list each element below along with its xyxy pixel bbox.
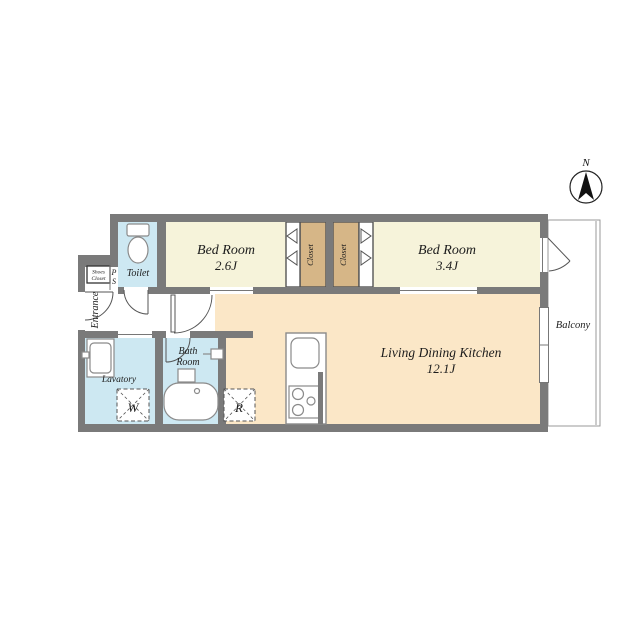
bedroom-large-size-label: 3.4J — [435, 258, 459, 273]
bedroom-small-size-label: 2.6J — [215, 258, 238, 273]
washer-space-label: W — [128, 400, 140, 415]
stove-burner-right — [307, 397, 315, 405]
compass-north-label: N — [581, 157, 590, 169]
pipe-space-label-s: S — [112, 277, 116, 286]
ldk-name-label: Living Dining Kitchen — [380, 345, 502, 360]
wall-toilet-bottom-right — [148, 287, 166, 294]
wall-right-seg3 — [540, 382, 548, 428]
bathroom-label-line2: Room — [175, 357, 199, 368]
refrigerator-space-label: R — [234, 400, 243, 415]
shoes-closet-label-line1: Shoes — [92, 270, 105, 276]
shoes-closet-label-line2: Closet — [91, 276, 106, 282]
closet-right-label: Closet — [338, 244, 348, 266]
bathtub-drain-fixture — [195, 389, 200, 394]
ldk-size-label: 12.1J — [427, 361, 457, 376]
entrance-label: Entrance — [90, 291, 101, 329]
wall-toilet-bottom-left — [118, 287, 124, 294]
bedroom-small-name-label: Bed Room — [197, 243, 255, 258]
wall-right-seg2 — [540, 272, 548, 308]
hallway-ldk-door-leaf — [171, 295, 175, 332]
shower-unit-fixture — [211, 349, 223, 359]
toilet-label: Toilet — [127, 268, 150, 279]
stove-burner-top-left — [293, 389, 304, 400]
wall-upper-left-block — [78, 255, 114, 267]
wall-bedrooms-bottom-seg1 — [166, 287, 210, 294]
floor-plan-page: N Bed Room 2.6J Bed Room 3.4J Living Din… — [0, 0, 640, 640]
wall-right-seg1 — [540, 214, 548, 238]
wall-bedrooms-bottom-seg2 — [253, 287, 400, 294]
washbasin-tap-fixture — [82, 352, 89, 358]
wall-toilet-bedroom — [157, 214, 166, 294]
lavatory-label: Lavatory — [101, 375, 137, 385]
wall-lavatory-top-seg1 — [85, 331, 118, 338]
compass: N — [570, 157, 602, 203]
pipe-space-label-p: P — [111, 268, 117, 277]
washbasin-bowl-fixture — [90, 343, 111, 373]
bath-counter-fixture — [178, 369, 195, 382]
balcony-label: Balcony — [556, 320, 591, 331]
closet-left-label: Closet — [305, 244, 315, 266]
wall-bedrooms-bottom-seg3 — [477, 287, 540, 294]
toilet-tank-fixture — [127, 224, 149, 236]
stove-burner-bottom-left — [293, 405, 304, 416]
bedroom-large-name-label: Bed Room — [418, 243, 476, 258]
wall-top — [110, 214, 548, 222]
wall-between-closets — [326, 222, 333, 287]
floor-plan-drawing: N Bed Room 2.6J Bed Room 3.4J Living Din… — [0, 0, 640, 640]
toilet-bowl-fixture — [128, 237, 148, 263]
wall-toilet-left — [110, 214, 118, 267]
wall-left-seg2 — [78, 330, 85, 428]
kitchen-counter-edge-wall — [318, 372, 323, 424]
bathtub-fixture — [164, 383, 218, 420]
bathroom-label-line1: Bath — [179, 346, 198, 357]
wall-bottom — [78, 424, 548, 432]
kitchen-sink-fixture — [291, 338, 319, 368]
wall-lavatory-bath-separator — [155, 331, 163, 424]
